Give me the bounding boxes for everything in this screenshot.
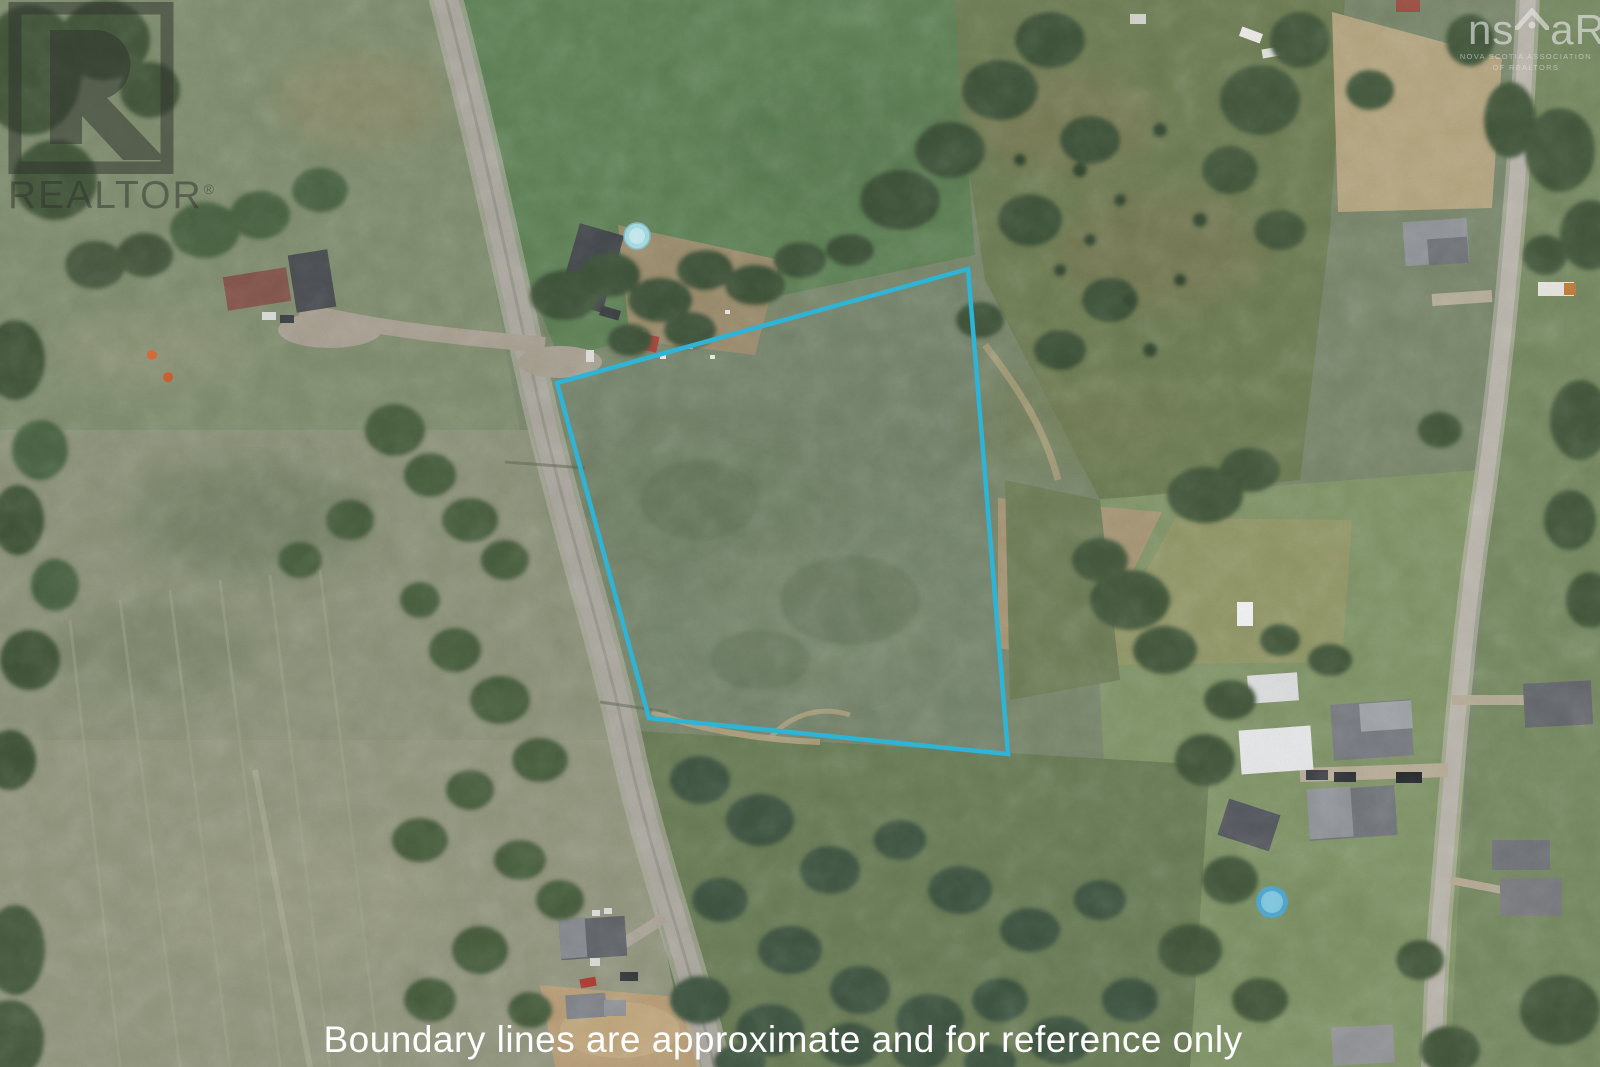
aerial-property-photo: REALTOR® ns aR NOVA SCOTIA ASSOCIATION O… [0,0,1600,1067]
grain-fine [0,0,1600,1067]
aerial-scene [0,0,1600,1067]
